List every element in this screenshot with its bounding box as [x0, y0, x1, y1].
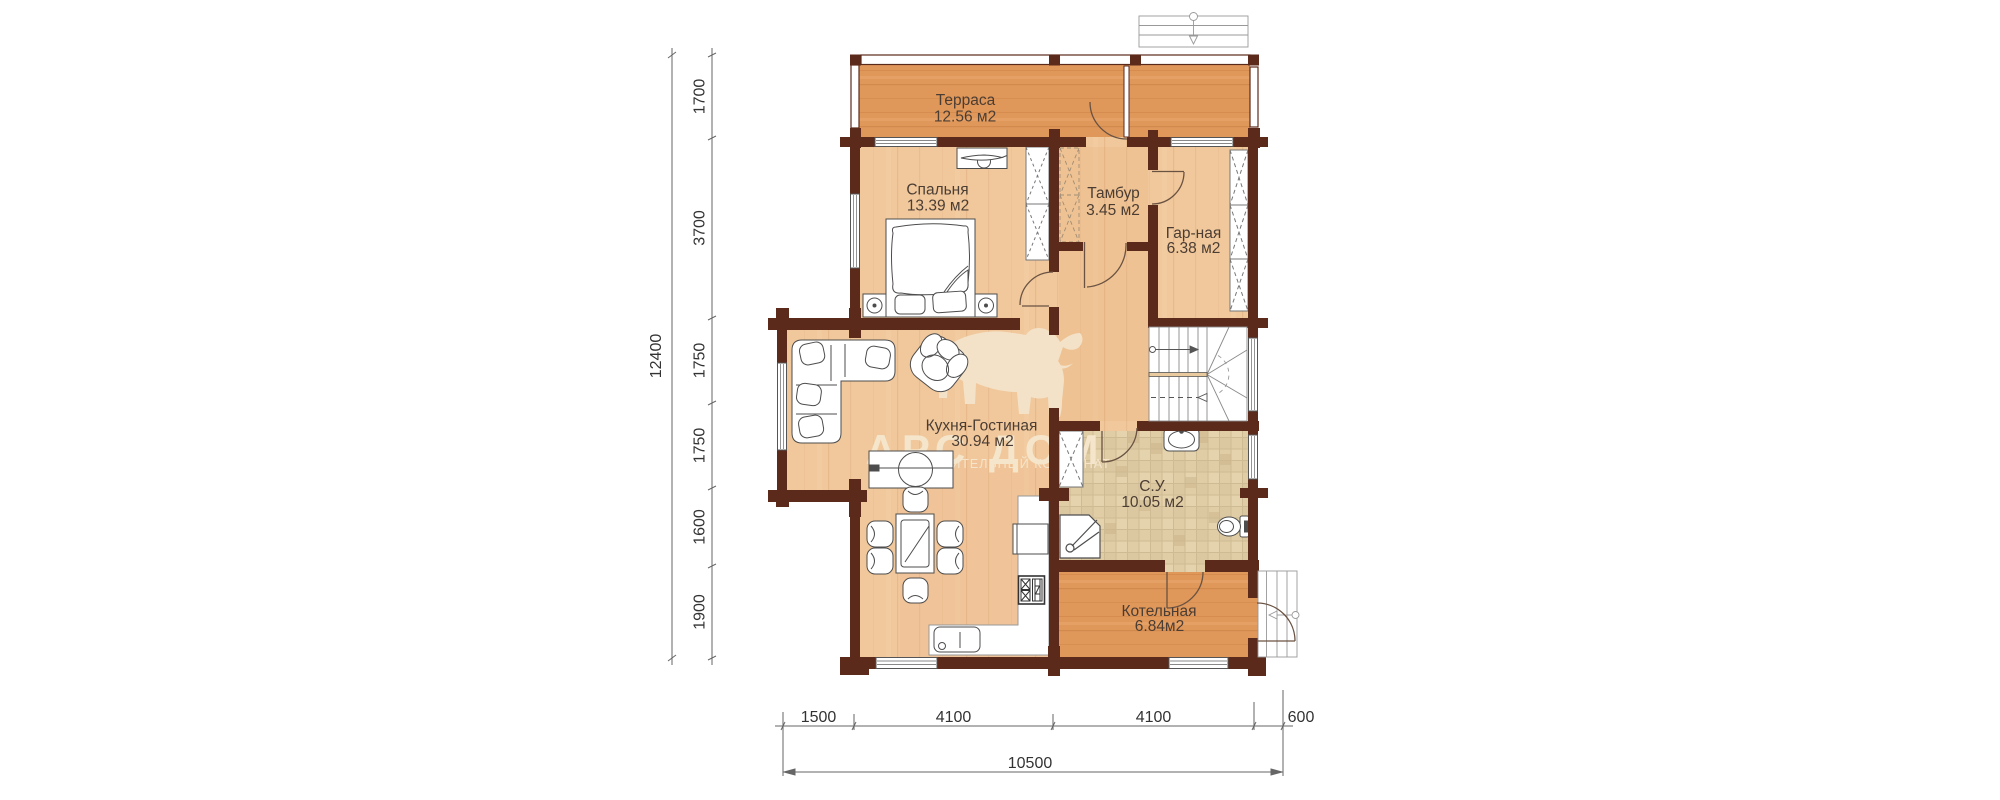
svg-text:3700: 3700: [692, 210, 709, 246]
svg-text:12.56 м2: 12.56 м2: [934, 109, 996, 126]
svg-text:1750: 1750: [692, 428, 709, 464]
svg-text:4100: 4100: [1136, 709, 1172, 726]
svg-text:Спальня: Спальня: [906, 182, 968, 199]
svg-text:Кухня-Гостиная: Кухня-Гостиная: [926, 418, 1038, 435]
svg-text:10.05 м2: 10.05 м2: [1121, 494, 1183, 511]
svg-text:Тамбур: Тамбур: [1087, 185, 1140, 202]
svg-text:1500: 1500: [801, 709, 837, 726]
svg-text:3.45 м2: 3.45 м2: [1086, 202, 1140, 219]
svg-text:6.38 м2: 6.38 м2: [1167, 240, 1221, 257]
svg-text:10500: 10500: [1008, 755, 1053, 772]
svg-text:1700: 1700: [692, 79, 709, 115]
svg-text:Терраса: Терраса: [936, 92, 996, 109]
svg-text:1900: 1900: [692, 594, 709, 630]
svg-text:12400: 12400: [648, 334, 665, 379]
svg-text:4100: 4100: [936, 709, 972, 726]
svg-text:600: 600: [1288, 709, 1315, 726]
svg-text:13.39 м2: 13.39 м2: [907, 198, 969, 215]
svg-text:1600: 1600: [692, 509, 709, 545]
svg-text:1750: 1750: [692, 343, 709, 379]
svg-text:С.У.: С.У.: [1139, 478, 1167, 495]
svg-text:6.84м2: 6.84м2: [1135, 618, 1184, 635]
svg-text:30.94 м2: 30.94 м2: [951, 433, 1013, 450]
